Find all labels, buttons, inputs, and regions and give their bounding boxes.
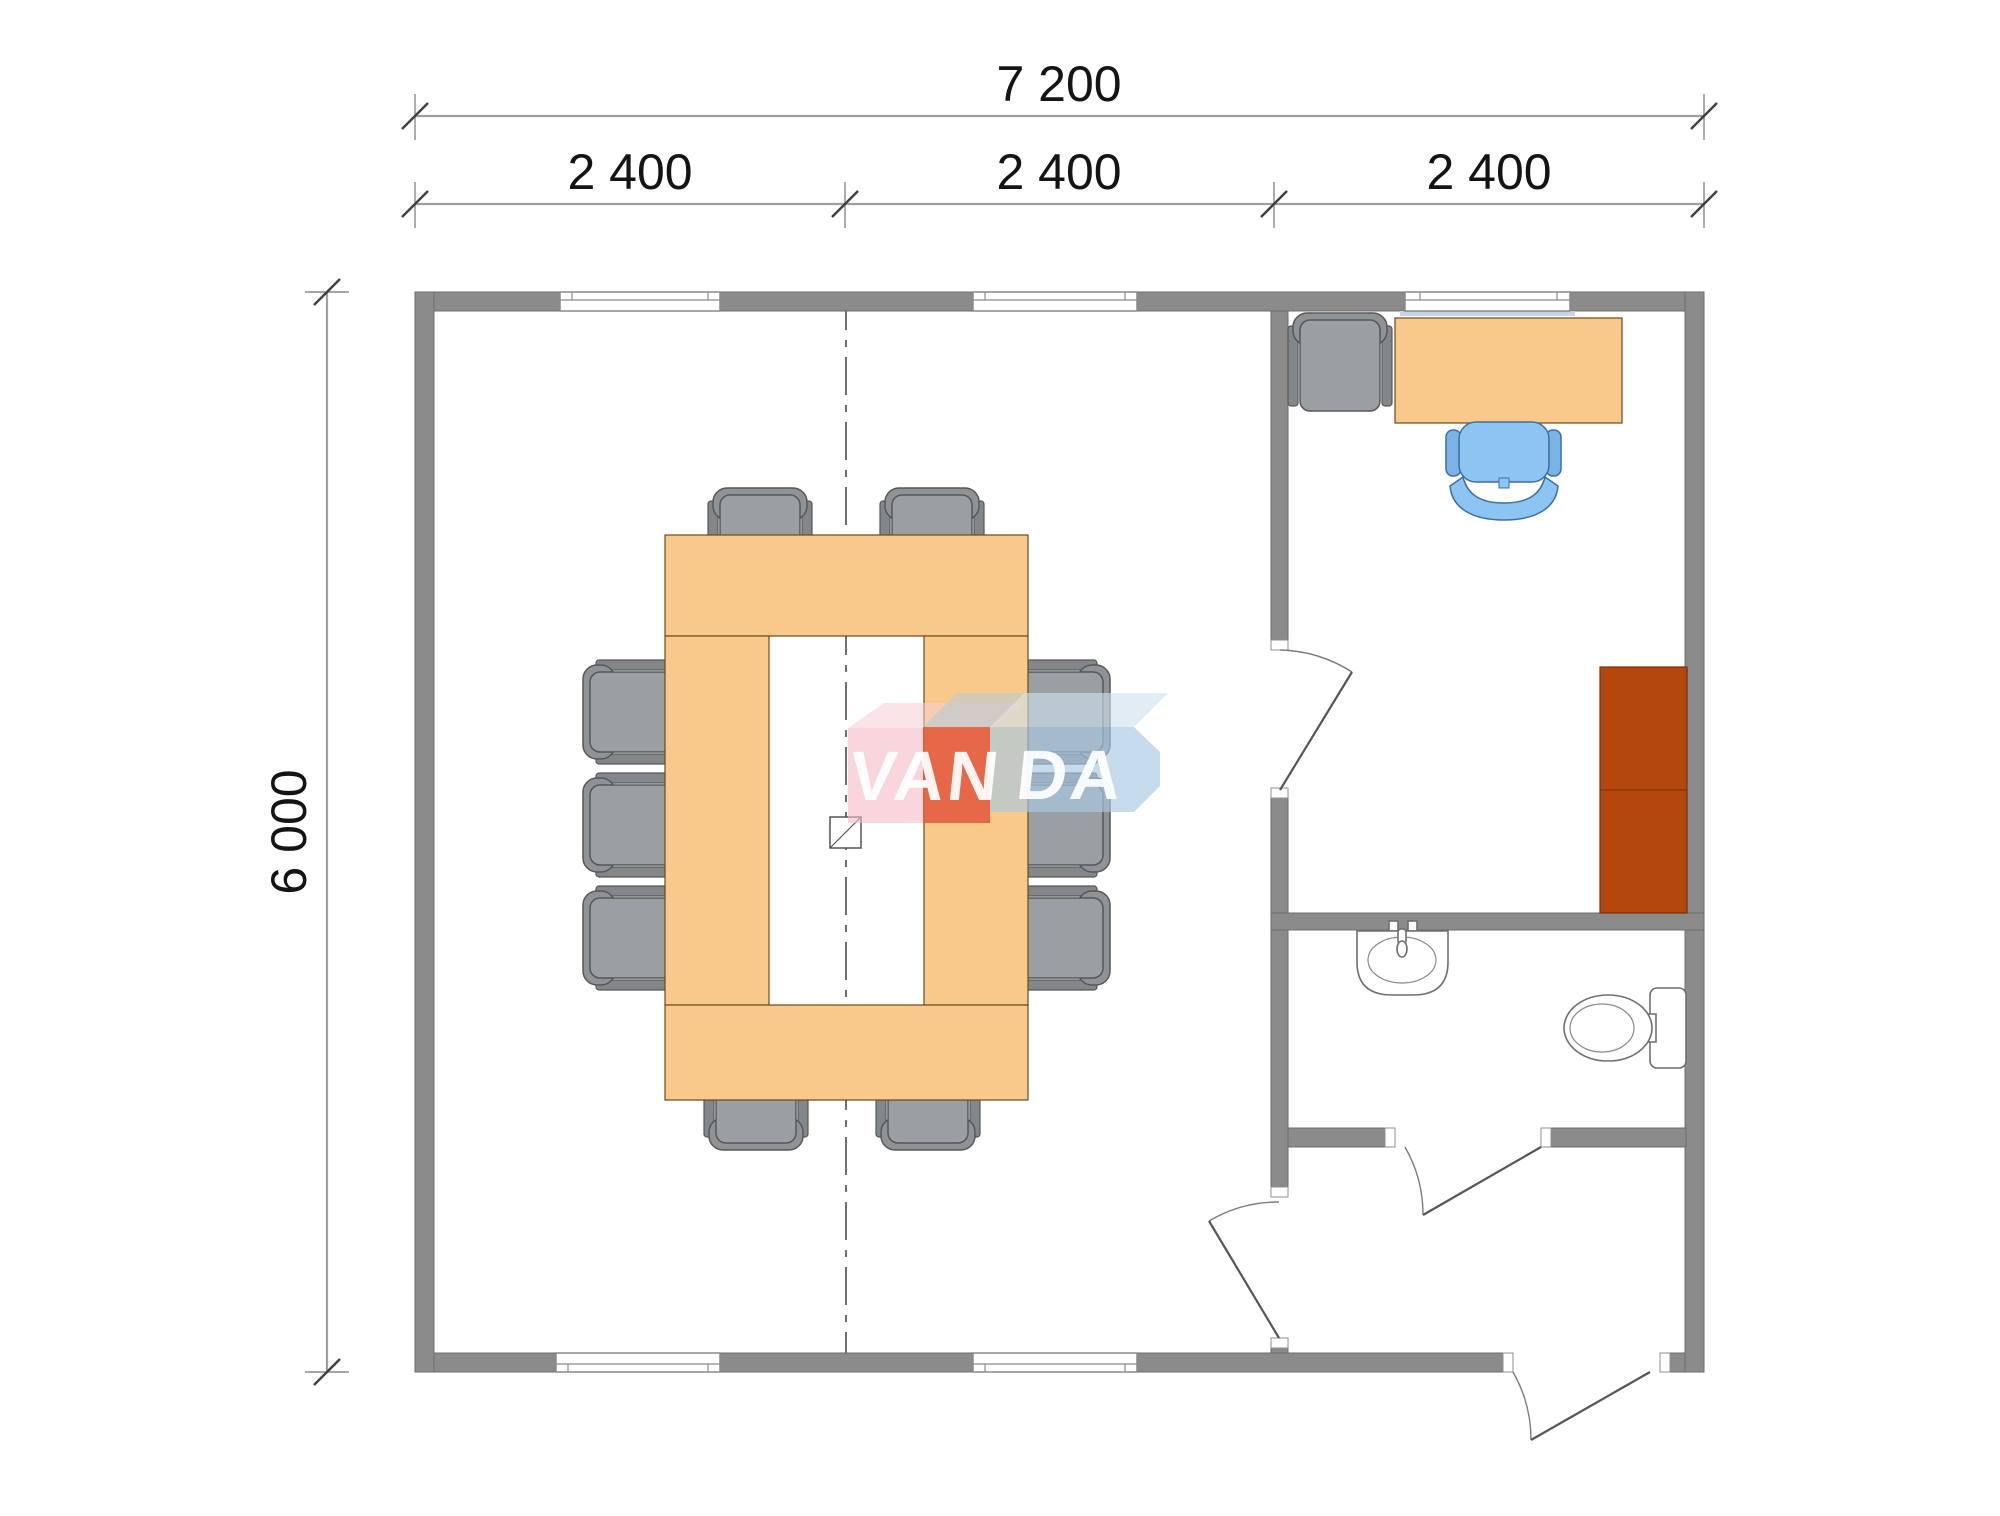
dimension-label-module-2: 2 400 xyxy=(996,144,1121,200)
door-entrance xyxy=(1513,1372,1650,1440)
window-bottom-2 xyxy=(973,1353,1137,1372)
watermark-text-right: DA xyxy=(1013,735,1128,814)
window-top-1 xyxy=(560,292,720,311)
office-desk xyxy=(1395,318,1622,423)
dimension-overall-width: 7 200 xyxy=(402,56,1717,140)
door-bathroom xyxy=(1405,1147,1541,1215)
sink xyxy=(1357,921,1448,995)
wall-right xyxy=(1685,292,1704,1372)
wall-left xyxy=(415,292,434,1372)
window-bottom-1 xyxy=(556,1353,720,1372)
dimension-label-total-width: 7 200 xyxy=(996,56,1121,112)
window-top-2 xyxy=(973,292,1137,311)
door-office xyxy=(1280,650,1352,790)
wall-office-bath xyxy=(1271,913,1704,930)
dimension-label-module-3: 2 400 xyxy=(1426,144,1551,200)
office-furniture xyxy=(1288,313,1687,913)
wall-bath-hall-right xyxy=(1551,1128,1686,1147)
watermark-text-left: VAN xyxy=(846,736,1006,815)
cabinet xyxy=(1600,667,1687,913)
door-meeting-room xyxy=(1209,1202,1279,1338)
wall-divider-upper xyxy=(1271,311,1288,650)
wall-bath-hall-left xyxy=(1288,1128,1395,1147)
vanda-watermark: VAN DA xyxy=(846,693,1168,823)
dimension-modules: 2 400 2 400 2 400 xyxy=(402,144,1717,228)
office-armchair xyxy=(1288,313,1392,411)
dimension-label-total-height: 6 000 xyxy=(261,769,317,894)
dimension-overall-height: 6 000 xyxy=(261,279,349,1385)
wall-divider-middle xyxy=(1271,788,1288,1197)
sink-tap xyxy=(1408,921,1417,931)
desk-chair xyxy=(1446,422,1561,520)
window-top-3 xyxy=(1400,292,1575,316)
floor-plan-canvas: 7 200 2 400 2 400 2 400 6 000 xyxy=(0,0,2000,1516)
floor-plan-drawing: 7 200 2 400 2 400 2 400 6 000 xyxy=(0,0,2000,1516)
sink-tap xyxy=(1389,921,1398,931)
bathroom-fixtures xyxy=(1357,921,1692,1068)
toilet xyxy=(1564,988,1692,1068)
dimension-label-module-1: 2 400 xyxy=(567,144,692,200)
